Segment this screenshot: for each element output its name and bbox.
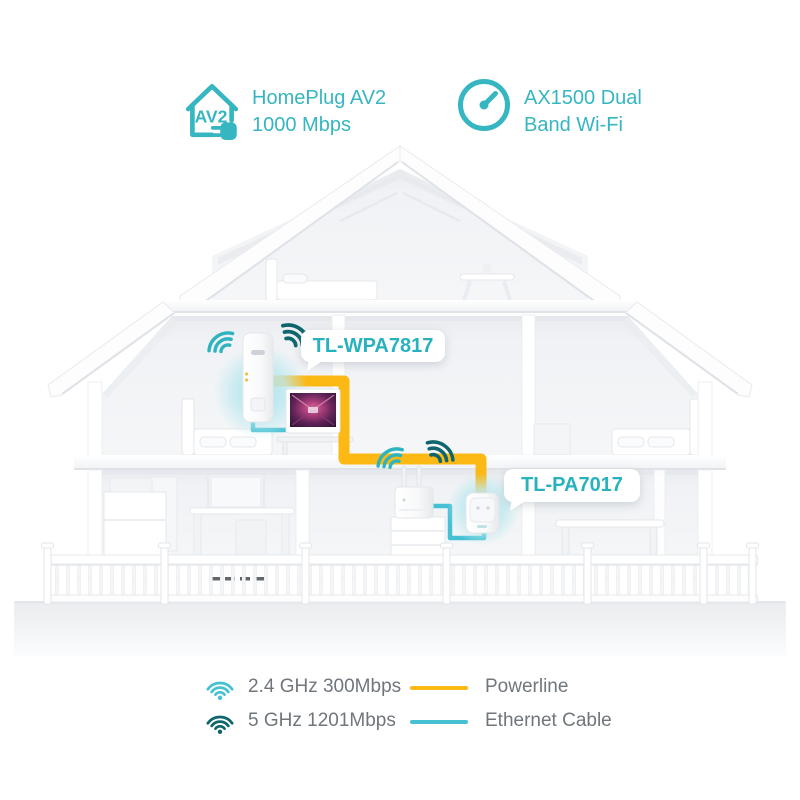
middle-cabinet [534,424,570,455]
tp-link-logo [251,350,265,355]
powerline-adapter-device [466,493,499,533]
wifi-5g-legend-icon [203,707,237,737]
homeplug-av2-icon: AV2 [179,76,245,142]
railing-top-rail [44,555,758,564]
legend-5g-label: 5 GHz 1201Mbps [248,710,396,732]
extender-label-bubble: TL-WPA7817 [301,330,445,362]
powerline-extender-device [243,333,273,422]
ground-slab [14,601,786,657]
router-antenna [402,466,406,488]
homeplug-badge-text: HomePlug AV2 1000 Mbps [252,85,386,139]
extender-led [245,378,248,381]
router-cabinet [391,517,445,559]
middle-exterior-wall-right [698,382,712,456]
speed-gauge-icon [455,76,513,134]
middle-exterior-wall-left [88,382,102,456]
homeplug-badge-line2: 1000 Mbps [252,112,386,139]
ax1500-badge-text: AX1500 Dual Band Wi-Fi [524,85,642,139]
legend-row-2g: 2.4 GHz 300Mbps Powerline [203,673,663,703]
ethernet-swatch [410,720,468,724]
legend-powerline-label: Powerline [485,676,568,698]
infographic-canvas: AV2 HomePlug AV2 1000 Mbps AX1500 Dual B… [0,0,800,800]
tv-device [286,389,340,433]
railing-bottom-rail [44,595,758,602]
router-antenna [417,466,421,488]
legend-ethernet-label: Ethernet Cable [485,710,612,732]
middle-ceiling-shadow [172,316,628,321]
homeplug-badge-line1: HomePlug AV2 [252,85,386,112]
railing-balusters [46,564,754,598]
middle-floor [48,302,752,470]
ax1500-badge-line2: Band Wi-Fi [524,112,642,139]
attic-floor-band-shadow [160,311,640,313]
adapter-label-bubble: TL-PA7017 [504,469,640,502]
ground-exterior-wall-left [88,470,102,558]
middle-divider-wall-right [522,315,535,455]
wifi-2g-legend-icon [203,673,237,703]
legend-row-5g: 5 GHz 1201Mbps Ethernet Cable [203,707,663,737]
ax1500-badge-line1: AX1500 Dual [524,85,642,112]
extender-led [245,372,248,375]
adapter-led [477,525,487,528]
legend-2g-label: 2.4 GHz 300Mbps [248,676,401,698]
attic-floor [160,146,640,313]
powerline-swatch [410,686,468,690]
